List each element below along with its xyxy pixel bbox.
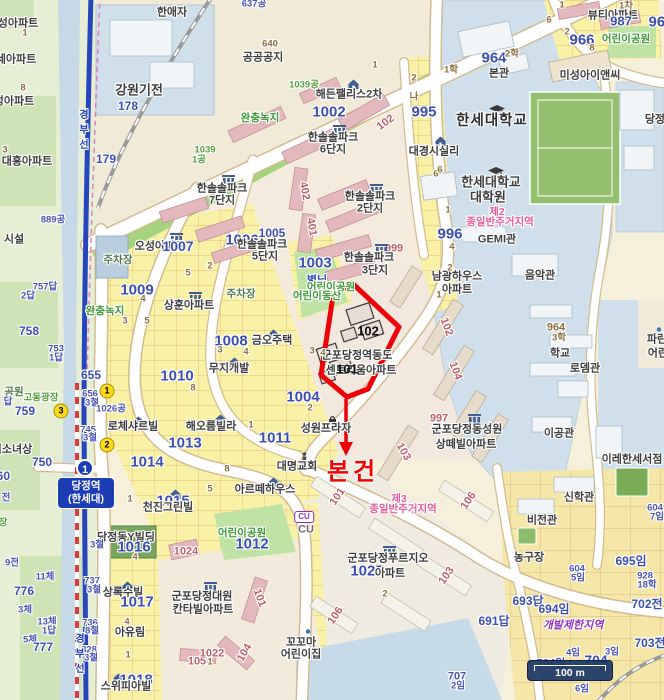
map-label: 2 (100, 438, 115, 453)
map-label: 6 (437, 165, 442, 175)
map-label: 1 (127, 494, 132, 504)
map-label: 2답 (21, 291, 35, 301)
map-label: 한솔솔파크 (197, 184, 248, 195)
map-label: 로뎀관 (570, 364, 600, 375)
map-label: 본관 (489, 69, 509, 80)
subway-line1-icon: 1 (76, 459, 94, 477)
map-label: 640 (262, 39, 278, 49)
map-label: 군포당정역동도 (322, 351, 393, 362)
map-label: 대명교회 (277, 462, 317, 473)
map-label: 해든팰리스2차 (316, 90, 383, 101)
map-label: 987 (610, 15, 632, 28)
map-label: 702전 (631, 598, 662, 610)
map-label: 주차장 (227, 289, 256, 300)
map-label: 8 (224, 464, 229, 474)
map-label: 178 (118, 100, 138, 112)
map-label: 3 (217, 345, 222, 355)
map-label: 637공 (242, 0, 267, 9)
map-label: 8 (20, 83, 25, 93)
station-label: 당정역 (한세대) (57, 477, 115, 509)
map-label: 종일반주거지역 (369, 504, 437, 515)
map-label: 102 (357, 325, 379, 338)
map-label: 750 (32, 456, 52, 468)
map-label: 9전 (5, 558, 19, 568)
map-label: 개발제한지역 (543, 621, 604, 632)
map-label: CU (298, 525, 314, 536)
map-label: 179 (96, 153, 116, 165)
map-label: 1009 (120, 283, 153, 298)
map-label: 1039공 (289, 80, 319, 90)
map-label: 한솔솔파크 (308, 133, 359, 144)
map-label: 칸타빌아파트 (173, 605, 234, 616)
map-label: 성원프라자 (301, 424, 352, 435)
station-name: 당정역 (58, 480, 114, 493)
map-label: 강원기전 (115, 84, 163, 97)
map-label: 3단지 (362, 266, 388, 277)
map-label: 996 (437, 227, 462, 242)
map-label: 4 (124, 617, 129, 627)
map-label: 102 (438, 316, 455, 337)
subject-marker-label: 본건 (327, 452, 379, 487)
scale-bar-label: 100 m (528, 667, 612, 679)
map-label: 3학 (552, 333, 566, 343)
map-label: 남광하우스 (432, 272, 483, 283)
map-label: 성아파트 (0, 19, 38, 30)
map-label: 4 (320, 348, 325, 358)
map-label: 1답 (42, 626, 56, 636)
map-label: 한솔솔파크 (344, 253, 395, 264)
map-label: 7단지 (209, 196, 235, 207)
map-label: 1011 (259, 431, 292, 446)
map-label: 3철 (87, 585, 101, 595)
map-label: 한솔솔파크 (345, 192, 396, 203)
map-label: 대경시실리 (409, 147, 460, 158)
station-subname: (한세대) (58, 493, 114, 506)
map-label: 1 (125, 650, 130, 660)
map-label: 3 (54, 404, 69, 419)
map-label: 3 (122, 316, 127, 326)
map-label: 당정초 (645, 115, 664, 126)
map-label: 음악관 (525, 271, 555, 282)
map-label: 2단지 (357, 204, 383, 215)
map-label: 2 (382, 589, 387, 599)
map-label: 미성아이앤씨 (560, 71, 621, 82)
map-label: 2 (307, 403, 312, 413)
map-label: 11체 (36, 572, 55, 582)
map-label: 1005 (259, 227, 286, 239)
map-label: 해오름빌라 (186, 422, 237, 433)
map-label: 402 (297, 181, 311, 201)
map-label: 1003 (298, 256, 331, 271)
map-label: 농구장 (514, 553, 544, 564)
map-label: 1007 (162, 239, 193, 253)
map-label: 1 (248, 420, 253, 430)
map-canvas[interactable]: 성아파트1세아파트8성아파트3대흥아파트889공한애자637공640공공공지강원… (0, 0, 664, 700)
map-label: 7임 (650, 512, 664, 522)
map-label: 104 (447, 360, 464, 381)
map-label: 종일반주거지역 (466, 217, 534, 228)
map-label: 성아파트 (0, 97, 34, 108)
map-label: 학교 (550, 349, 570, 360)
map-label: 6 (546, 15, 551, 25)
map-label: 964 (481, 51, 506, 66)
map-label: 군포당정동성원 (432, 425, 503, 436)
map-label: 966 (648, 15, 664, 30)
map-label: 나 (410, 92, 419, 102)
map-label: 주차장 (104, 255, 133, 266)
map-label: 4 (449, 242, 454, 252)
map-label: 2 (207, 261, 212, 271)
map-label: 1012 (235, 537, 268, 552)
map-label: 101 (336, 363, 358, 376)
map-label: 4 (132, 552, 137, 562)
map-label: 대학원 (470, 191, 506, 204)
map-label: 비전관 (527, 516, 557, 527)
map-label: 아르떼하우스 (235, 485, 296, 496)
map-label: 이레한세서점 (602, 455, 663, 466)
map-label: 상떼빌아파트 (436, 440, 497, 451)
map-label: 691답 (478, 615, 509, 627)
map-label: 부 (79, 126, 88, 136)
map-label: 선 (79, 141, 88, 151)
map-label: 천진그린빌 (143, 503, 194, 514)
map-label: 2 (447, 263, 452, 273)
map-label: 3철 (84, 653, 98, 663)
map-label: 고동광장 (24, 393, 59, 403)
map-label: 어린이동산 (293, 291, 341, 302)
map-label: CU (294, 511, 314, 523)
map-label: 703전 (634, 637, 664, 649)
map-label: 1 (207, 657, 212, 667)
map-label: 4 (243, 347, 248, 357)
map-label: 아유림 (115, 628, 145, 639)
map-label: 1004 (286, 390, 319, 405)
map-label: 655 (81, 369, 101, 381)
map-label: 한애자 (157, 8, 187, 19)
map-label: 101 (251, 587, 268, 608)
map-label: 군포당정대원 (172, 592, 233, 603)
map-label: 1 (22, 28, 27, 38)
map-label: 103 (437, 565, 457, 586)
map-label: 아파트 (442, 285, 472, 296)
map-label: 1공 (192, 155, 206, 165)
map-label: 1002 (312, 105, 345, 120)
map-label: 1017 (120, 595, 153, 610)
map-label: 2 (411, 73, 416, 83)
map-label: 101 (328, 486, 348, 507)
map-label: 1013 (168, 436, 201, 451)
map-label: 5 (144, 316, 149, 326)
map-label: 6단지 (320, 145, 346, 156)
map-label: 한세대학교 (456, 114, 528, 129)
map-label: 2임 (451, 681, 465, 691)
map-label: 777 (33, 641, 53, 653)
map-label: 18학 (637, 580, 656, 590)
map-label: 1 (559, 0, 564, 10)
map-label: 4 (140, 294, 145, 304)
map-label: 5 (185, 268, 190, 278)
map-label: 스위피아빌 (101, 682, 152, 693)
map-label: 4임 (566, 648, 580, 658)
map-label: 금오주택 (252, 336, 292, 347)
map-label: 파란 (647, 335, 664, 346)
map-label: 694임 (538, 603, 569, 615)
map-label: 103 (394, 441, 413, 462)
map-label: 695임 (615, 555, 646, 567)
map-label: 경 (79, 111, 88, 121)
map-label: 3 (2, 145, 7, 155)
map-label: 1답 (49, 353, 63, 363)
map-label: 889공 (41, 215, 66, 225)
map-label: 5임 (571, 573, 585, 583)
map-label: 104 (236, 642, 255, 663)
map-label: 한세대학교 (461, 176, 521, 189)
map-label: 1010 (160, 369, 193, 384)
map-label: 3임 (605, 647, 619, 657)
map-label: 8 (589, 43, 594, 53)
map-label: 어린이집 (648, 349, 664, 360)
map-label: 부 (75, 650, 84, 660)
map-label: 106 (326, 605, 346, 626)
map-label: 선 (75, 665, 84, 675)
map-label: 401 (304, 217, 318, 237)
scale-bar: 100 m (527, 660, 613, 681)
map-label: 102 (375, 113, 396, 133)
map-label: 5단지 (252, 252, 278, 263)
map-label: 2 (564, 27, 569, 37)
map-labels-layer: 성아파트1세아파트8성아파트3대흥아파트889공한애자637공640공공공지강원… (0, 0, 664, 700)
map-label: 995 (411, 105, 436, 120)
map-label: 세아파트 (0, 55, 36, 66)
map-label: 이공관 (544, 429, 574, 440)
map-label: 3철 (90, 540, 104, 550)
map-label: 1 (436, 290, 441, 300)
map-label: 전 (2, 493, 11, 503)
map-label: 로체샤르빌 (108, 422, 159, 433)
map-label: 아파트 (375, 569, 405, 580)
map-label: 1024 (174, 547, 198, 558)
map-label: 1 (445, 205, 450, 215)
map-label: 757답 (33, 282, 58, 292)
map-label: 758 (19, 325, 39, 337)
map-label: GEMI관 (478, 235, 516, 246)
map-label: 1 (100, 384, 115, 399)
map-label: 의소녀상 (0, 445, 32, 456)
map-label: 한솔솔파크 (237, 240, 288, 251)
map-label: 1차 (619, 1, 633, 11)
map-label: 8 (190, 383, 195, 393)
map-label: 완충녹지 (86, 306, 125, 317)
map-label: 장 (0, 518, 7, 528)
map-label: 759 (15, 405, 35, 417)
map-label: 공공공지 (243, 53, 283, 64)
map-label: 1014 (130, 455, 163, 470)
map-label: 3체 (18, 605, 32, 615)
map-label: 무지개발 (209, 364, 249, 375)
map-label: 3철 (83, 433, 97, 443)
map-label: 신학관 (564, 493, 594, 504)
map-label: 상훈아파트 (164, 301, 215, 312)
map-label: 8철 (85, 626, 99, 636)
map-label: 2학 (505, 49, 519, 59)
map-label: 답 (4, 397, 13, 407)
map-label: 꼬꼬마 (286, 638, 316, 649)
map-label: 6임 (575, 684, 589, 694)
map-label: 1학 (444, 65, 458, 75)
map-label: 완충녹지 (241, 113, 280, 124)
map-label: 3 (309, 346, 314, 356)
map-label: 어린이집 (281, 650, 321, 661)
map-label: 1026공 (96, 404, 126, 414)
map-label: 776 (14, 585, 34, 597)
map-label: 1 (372, 60, 377, 70)
map-label: 106 (459, 490, 479, 511)
map-label: 어린이공원 (602, 34, 650, 45)
map-label: 시설 (4, 235, 24, 246)
map-label: 대흥아파트 (2, 157, 53, 168)
map-label: 5 (207, 484, 212, 494)
map-label: 경 (75, 635, 84, 645)
map-label: 760 (0, 470, 10, 482)
